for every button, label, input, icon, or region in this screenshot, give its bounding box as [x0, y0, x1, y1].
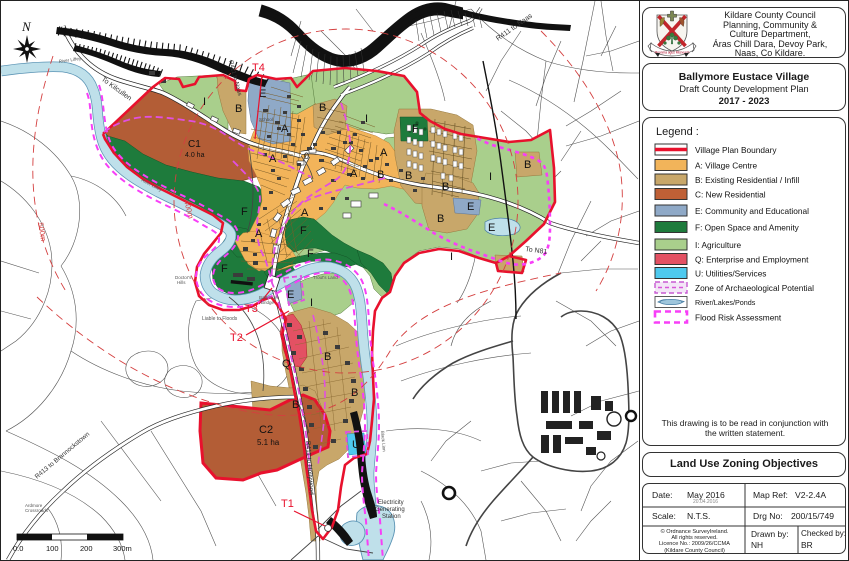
svg-text:Electricity: Electricity — [378, 500, 404, 506]
svg-text:U: U — [352, 439, 360, 451]
svg-text:F: Open Space and Amenity: F: Open Space and Amenity — [695, 223, 800, 233]
svg-text:0: 0 — [304, 151, 309, 161]
svg-text:A: A — [255, 228, 263, 240]
svg-text:School: School — [259, 117, 273, 122]
svg-text:Liable to Floods: Liable to Floods — [202, 316, 238, 322]
svg-text:C1: C1 — [188, 139, 201, 150]
svg-text:300m: 300m — [113, 544, 132, 553]
svg-text:A: A — [301, 207, 309, 219]
svg-text:U: Utilities/Services: U: Utilities/Services — [695, 269, 766, 279]
svg-text:F: F — [412, 123, 419, 135]
svg-text:Generating: Generating — [375, 507, 405, 513]
svg-text:C: New Residential: C: New Residential — [695, 190, 766, 200]
svg-text:F: F — [221, 263, 228, 275]
svg-text:B: B — [235, 103, 242, 115]
svg-text:Q: Q — [282, 358, 291, 370]
svg-text:I: I — [365, 113, 368, 125]
svg-text:E: Community and Educational: E: Community and Educational — [695, 206, 809, 216]
svg-text:5.1 ha: 5.1 ha — [257, 438, 280, 447]
svg-text:4.0 ha: 4.0 ha — [185, 152, 205, 159]
svg-text:Village Plan Boundary: Village Plan Boundary — [695, 145, 777, 155]
svg-text:B: B — [405, 170, 412, 182]
svg-text:E: E — [488, 222, 495, 234]
svg-text:Flood Risk Assessment: Flood Risk Assessment — [695, 313, 782, 323]
svg-text:C2: C2 — [259, 424, 273, 436]
svg-text:B: B — [377, 169, 384, 181]
svg-text:B: B — [524, 159, 531, 171]
svg-text:B: B — [292, 399, 299, 411]
svg-text:N: N — [21, 19, 32, 34]
svg-text:E: E — [287, 289, 294, 301]
svg-text:B: B — [442, 181, 449, 193]
svg-text:T2: T2 — [230, 332, 243, 344]
svg-text:I: I — [310, 297, 313, 309]
svg-text:I: Agriculture: I: Agriculture — [695, 240, 742, 250]
svg-text:A: A — [281, 123, 289, 135]
svg-text:Meanma agus Misneach: Meanma agus Misneach — [655, 51, 690, 55]
svg-text:B: B — [319, 102, 326, 114]
svg-text:A: Village Centre: A: Village Centre — [695, 161, 757, 171]
svg-text:Trout's Land: Trout's Land — [313, 275, 338, 280]
svg-text:Station: Station — [382, 514, 401, 520]
svg-text:I: I — [489, 171, 492, 183]
svg-text:B: B — [324, 351, 331, 363]
svg-text:T4: T4 — [252, 62, 265, 74]
svg-text:T1: T1 — [281, 498, 294, 510]
svg-text:Q: Enterprise and Employment: Q: Enterprise and Employment — [695, 255, 809, 265]
svg-text:I: I — [203, 96, 206, 108]
svg-text:B: B — [437, 213, 444, 225]
svg-text:I: I — [450, 251, 453, 263]
svg-text:Hills: Hills — [177, 280, 186, 285]
svg-text:F: F — [307, 248, 314, 260]
svg-text:F: F — [300, 225, 307, 237]
svg-text:B: Existing Residential / Inf: B: Existing Residential / Infill — [695, 175, 799, 185]
svg-text:A: A — [269, 153, 277, 165]
svg-text:River/Lakes/Ponds: River/Lakes/Ponds — [695, 298, 756, 307]
svg-text:0.0: 0.0 — [13, 544, 23, 553]
svg-text:B: B — [351, 387, 358, 399]
svg-text:Crossroads: Crossroads — [25, 508, 49, 513]
svg-text:A: A — [350, 168, 358, 180]
svg-text:T3: T3 — [245, 303, 258, 315]
svg-text:200: 200 — [80, 544, 93, 553]
svg-text:E: E — [467, 201, 474, 213]
svg-text:A: A — [380, 147, 388, 159]
svg-text:100: 100 — [46, 544, 59, 553]
svg-text:Zone of Archaeological Potenti: Zone of Archaeological Potential — [695, 283, 814, 293]
svg-text:F: F — [241, 206, 248, 218]
svg-text:Bridge: Bridge — [261, 300, 275, 305]
